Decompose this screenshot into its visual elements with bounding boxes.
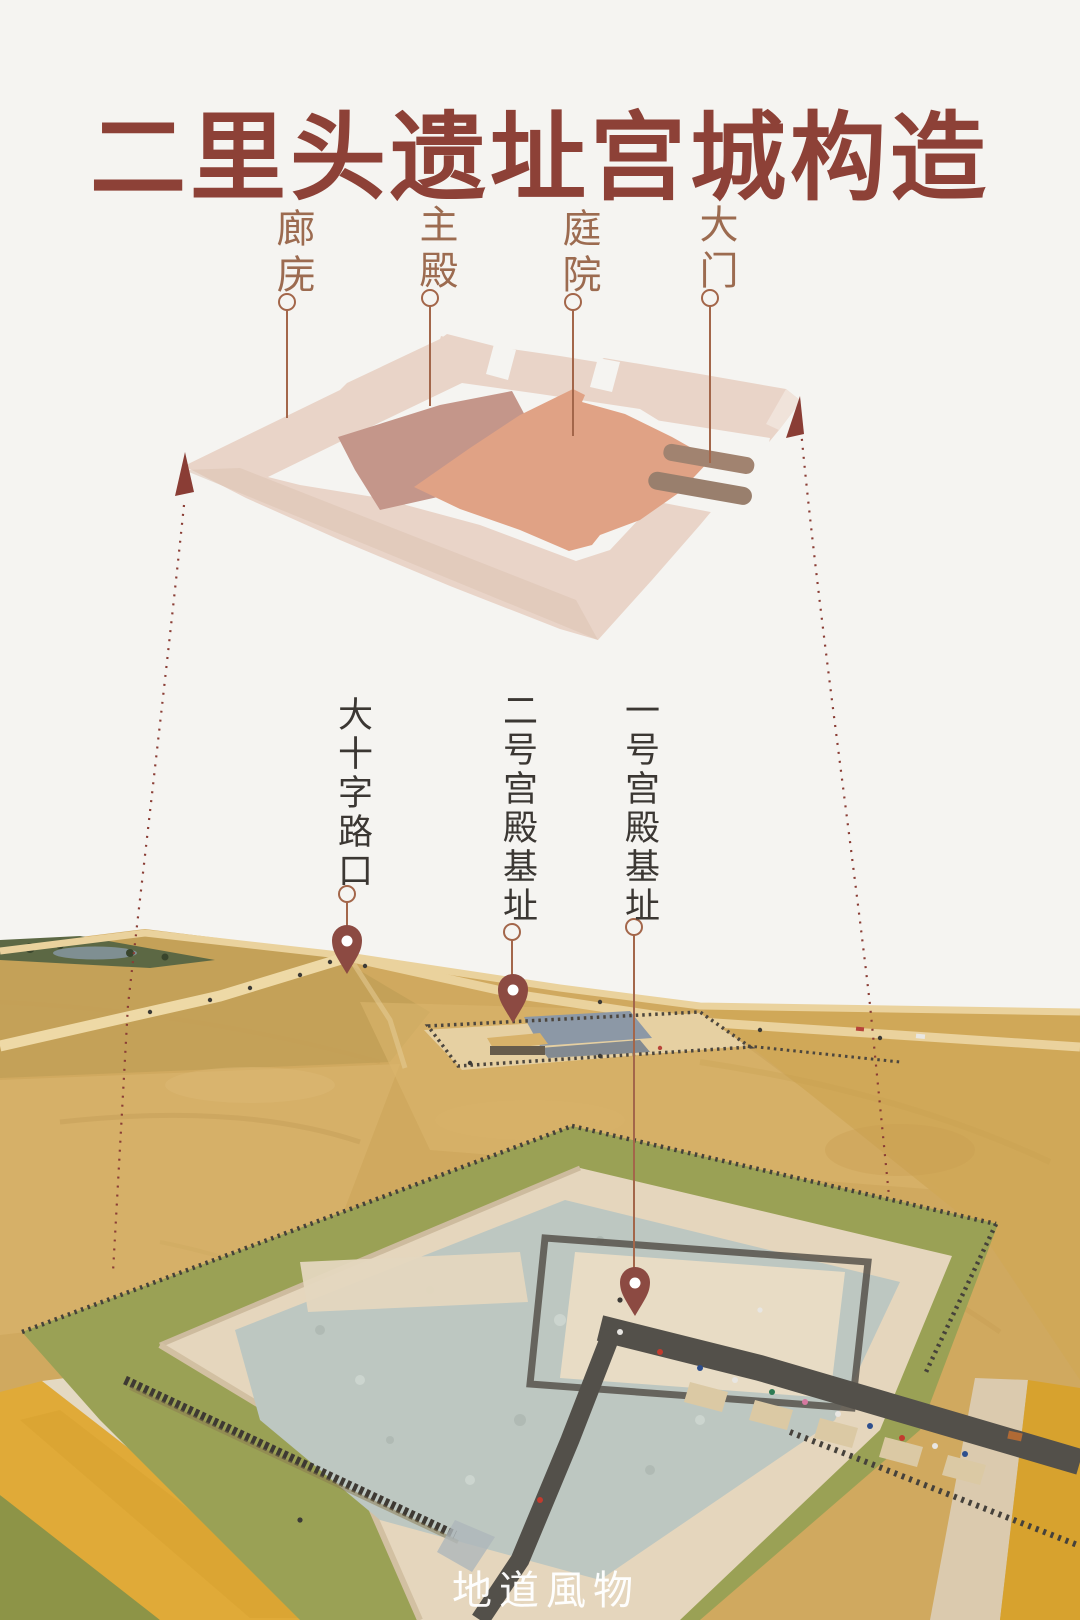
- label-gate: 大门: [687, 204, 743, 296]
- label-corridor: 廊庑: [264, 208, 320, 300]
- label-crossroads: 大十字路口: [327, 696, 378, 891]
- pond: [53, 947, 137, 960]
- label-main-hall: 主殿: [407, 204, 463, 296]
- page-title: 二里头遗址宫城构造: [0, 80, 1080, 219]
- aerial-photo: [0, 929, 1080, 1620]
- infographic-page: 二里头遗址宫城构造 廊庑 主殿 庭院 大门 大十字路口 二号宫殿基址 一号宫殿基…: [0, 0, 1080, 1620]
- label-courtyard: 庭院: [550, 208, 606, 300]
- brand-watermark: 地道風物: [452, 1558, 640, 1616]
- arrow-up-icon: [175, 452, 194, 496]
- side-hall-pad: [300, 1252, 528, 1312]
- palace2-building: [490, 1046, 545, 1055]
- label-palace1: 一号宫殿基址: [614, 692, 665, 926]
- palace-plan-diagram: [184, 334, 801, 640]
- label-palace2: 二号宫殿基址: [492, 692, 543, 926]
